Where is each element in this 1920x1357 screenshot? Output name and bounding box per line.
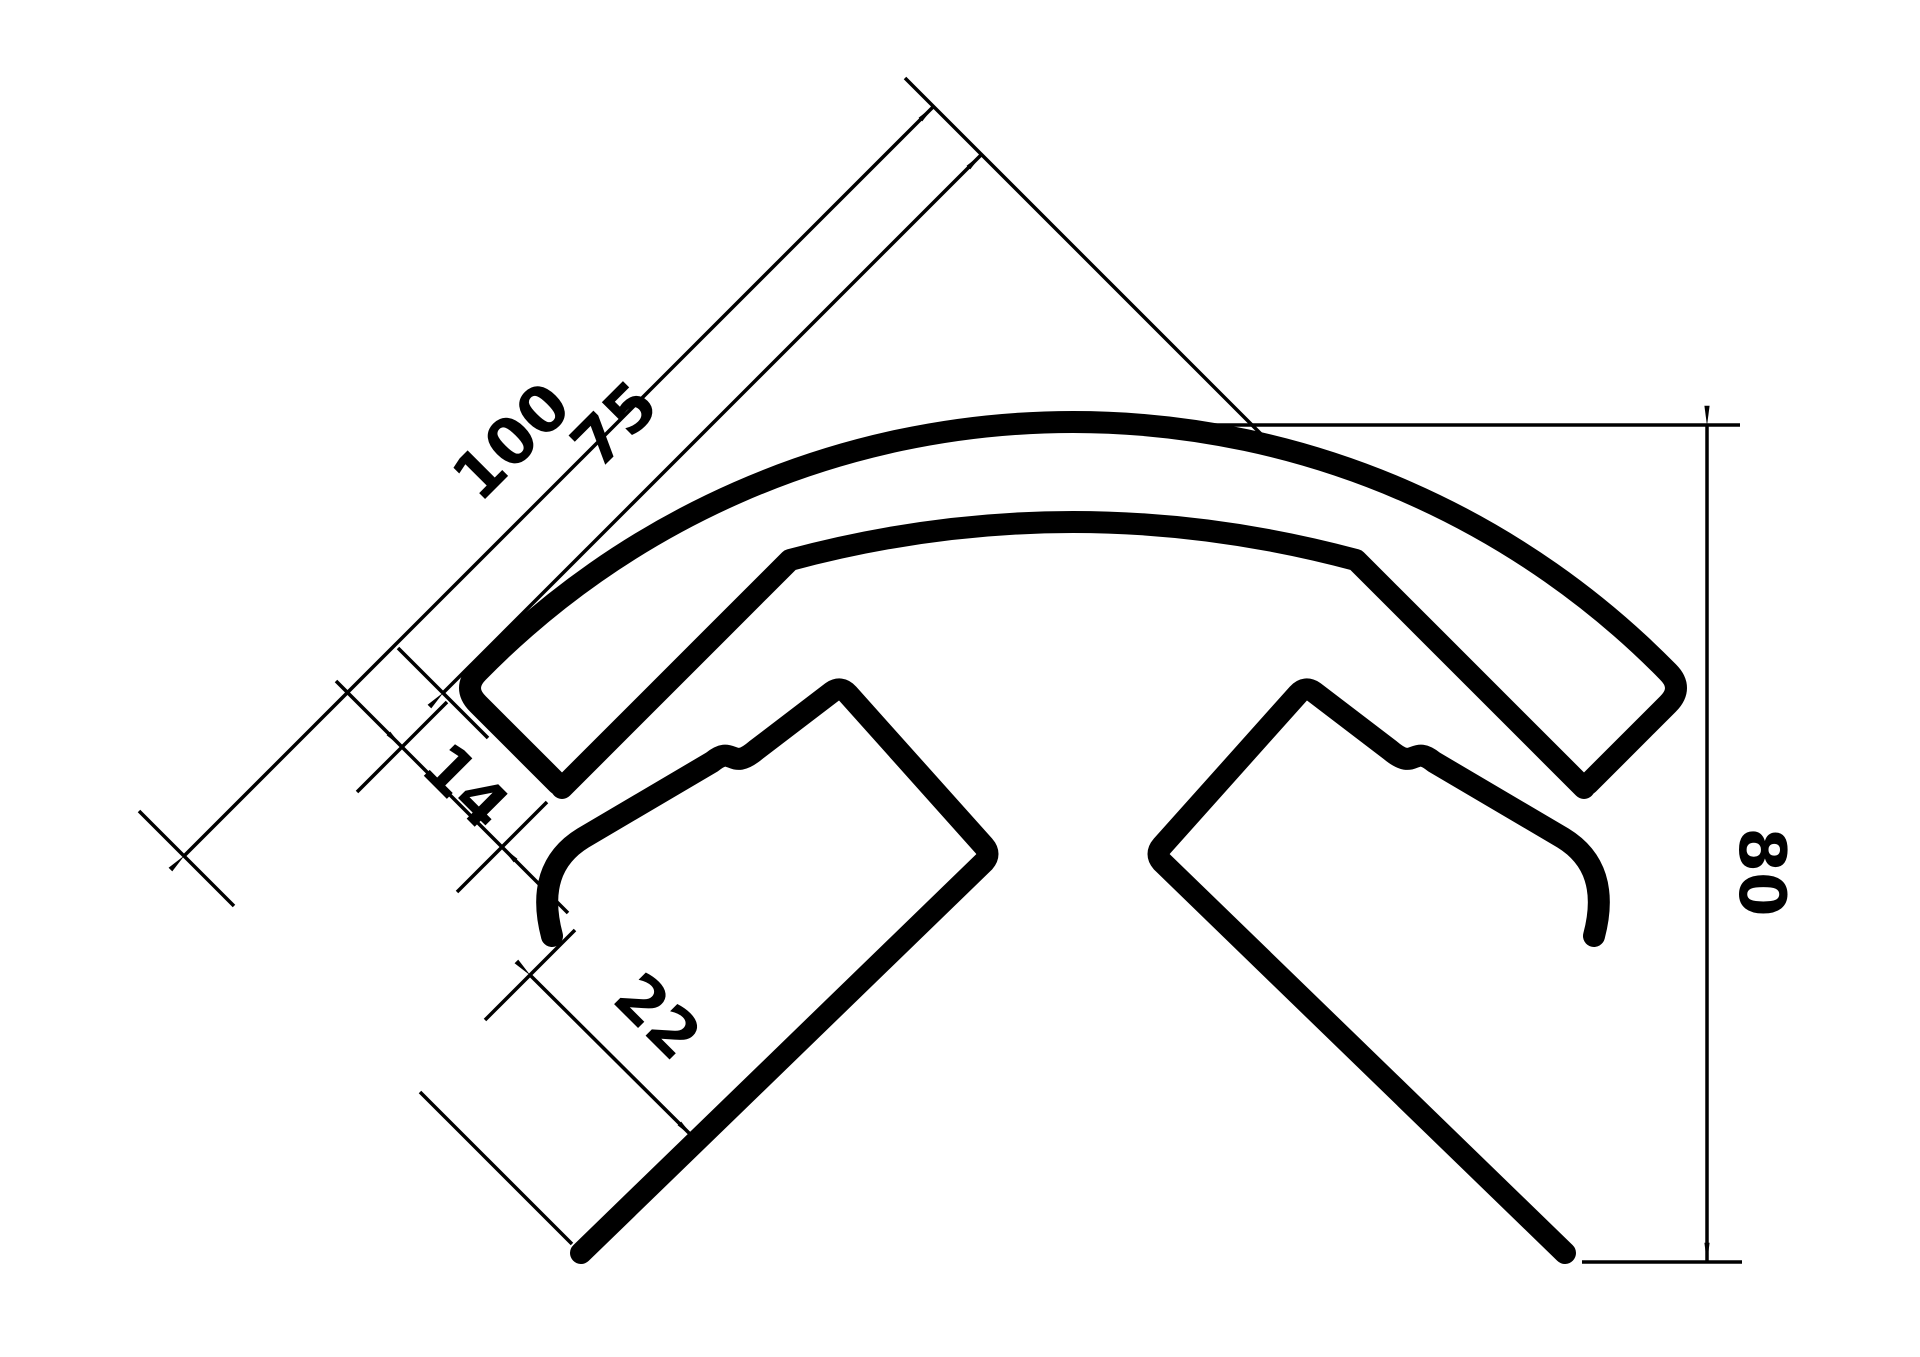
dim-label-14: 14 (407, 729, 522, 844)
ext-line-100-long (420, 1092, 572, 1244)
dim-line-100 (184, 106, 934, 856)
ext-line-100-tick (139, 811, 234, 906)
extension-lines (139, 78, 1742, 1262)
drawing-canvas: 100 75 14 22 80 (0, 0, 1920, 1357)
technical-drawing: 100 75 14 22 80 (0, 0, 1920, 1357)
dim-line-14-upper-leader (336, 681, 402, 747)
profile-right-leg (1159, 689, 1599, 1253)
dim-label-80: 80 (1724, 827, 1798, 916)
ext-line-corner-45 (905, 78, 1262, 435)
profile-left-leg (547, 689, 987, 1253)
dim-label-100: 100 (439, 369, 586, 516)
profile-outline (470, 422, 1676, 1253)
dim-label-22: 22 (599, 959, 714, 1074)
profile-outer-arc (470, 422, 1676, 784)
